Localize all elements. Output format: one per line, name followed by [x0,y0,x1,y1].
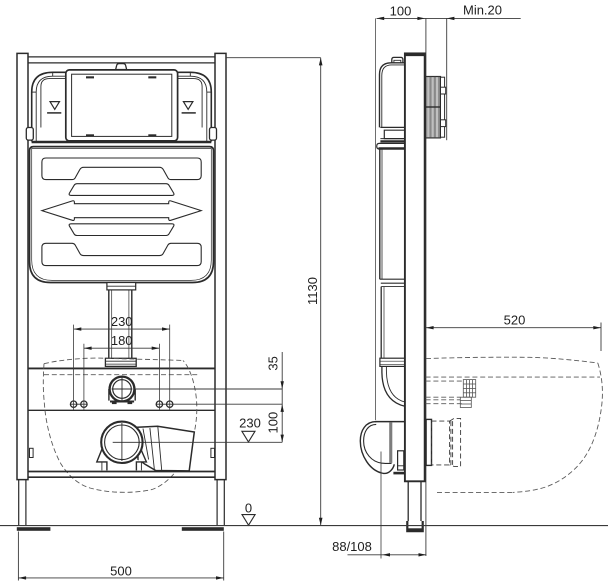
svg-text:230: 230 [239,416,261,431]
svg-text:88/108: 88/108 [332,539,372,554]
svg-text:Min.20: Min.20 [463,2,502,17]
svg-text:230: 230 [111,314,133,329]
svg-text:100: 100 [390,4,412,19]
svg-text:500: 500 [110,564,132,579]
svg-text:180: 180 [111,333,133,348]
svg-text:1130: 1130 [305,277,320,305]
svg-text:0: 0 [245,500,252,515]
svg-text:35: 35 [265,356,280,370]
svg-text:100: 100 [265,412,280,434]
svg-text:520: 520 [504,313,526,328]
